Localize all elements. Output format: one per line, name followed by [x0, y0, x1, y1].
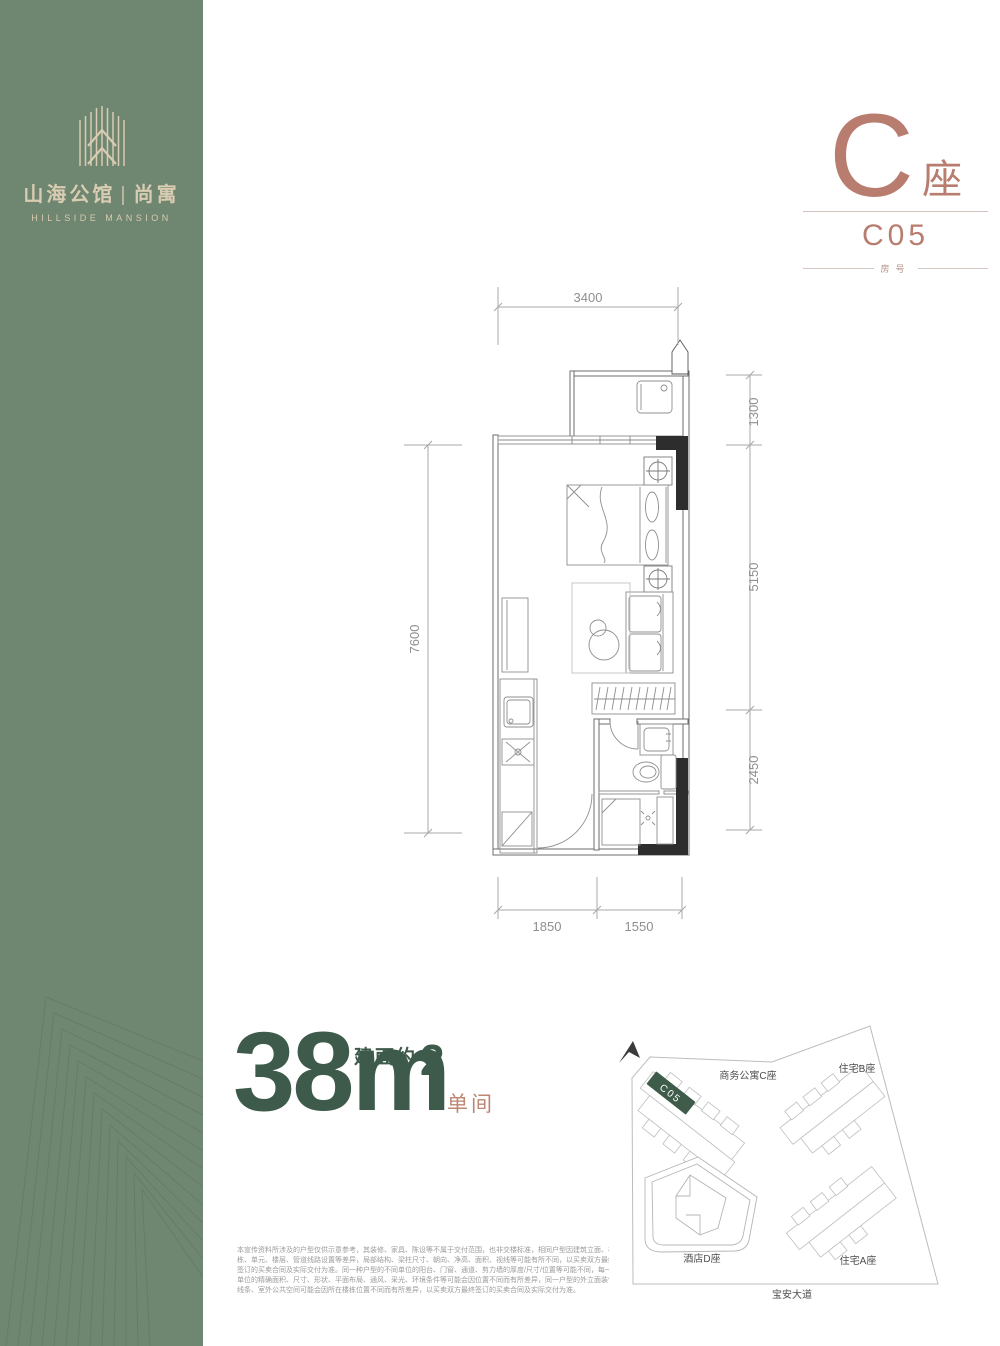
bed [567, 485, 668, 565]
brand-name-separator: | [115, 184, 133, 206]
area-block: 38m 建面约 2 单间 [233, 1026, 513, 1138]
dim-bottom-2-label: 1550 [625, 919, 654, 934]
unit-number-caption: 房号 [881, 262, 911, 275]
brand-monogram-icon [78, 104, 126, 168]
building-b-label: 住宅B座 [839, 1062, 876, 1075]
floor-plan-drawing: 3400 1300 5150 2450 7600 1850 1550 [400, 280, 780, 940]
site-plan-map: C05 商务公寓C座 住宅B座 酒店D座 住宅A座 宝安大道 [608, 1015, 978, 1315]
brand-sidebar: 山海公馆|尚寓 HILLSIDE MANSION [0, 0, 203, 1346]
caption-line-right [918, 268, 989, 269]
brand-name-cn: 山海公馆|尚寓 [0, 178, 203, 207]
brochure-page: 山海公馆|尚寓 HILLSIDE MANSION C [0, 0, 1000, 1346]
dim-top-label: 3400 [574, 290, 603, 305]
entrance-arrow-marker [672, 340, 688, 374]
coffee-table [589, 620, 619, 660]
bathroom-fixtures [602, 724, 676, 845]
road-label: 宝安大道 [772, 1288, 812, 1301]
dimension-labels: 3400 1300 5150 2450 7600 1850 1550 [407, 290, 761, 934]
area-prefix-label: 建面约 [354, 1042, 417, 1069]
toilet [661, 755, 676, 789]
building-letter: C [829, 106, 914, 206]
kitchen-sink [504, 697, 533, 727]
building-d-label: 酒店D座 [683, 1252, 720, 1265]
unit-header: C 座 C05 房号 [803, 102, 988, 275]
brand-block: 山海公馆|尚寓 HILLSIDE MANSION [0, 0, 203, 223]
building-c-label: 商务公寓C座 [719, 1069, 776, 1082]
layout-type-label: 单间 [447, 1088, 495, 1118]
north-arrow-icon [619, 1041, 640, 1063]
tv-cabinet [502, 598, 528, 672]
area-value: 38m [233, 1026, 448, 1118]
area-exponent: 2 [420, 1036, 444, 1086]
dim-right-1-label: 1300 [746, 398, 761, 427]
floor-plan-windows [498, 436, 688, 794]
disclaimer-line: 本宣传资料所涉及的户型仅供示意参考，其装修、家具、陈设等不属于交付范围，也非交楼… [237, 1246, 609, 1256]
brand-name-en: HILLSIDE MANSION [0, 213, 203, 223]
entry-door-swing [538, 794, 592, 848]
dim-right-3-label: 2450 [746, 756, 761, 785]
unit-number-caption-row: 房号 [803, 262, 988, 275]
bathroom-door-swing [610, 721, 638, 749]
building-a-label: 住宅A座 [840, 1254, 877, 1267]
disclaimer-line: 线条、室外公共空间可能会因所在楼栋位置不同而有所差异，以买卖双方最终签订的买卖合… [237, 1286, 609, 1296]
disclaimer-text: 本宣传资料所涉及的户型仅供示意参考，其装修、家具、陈设等不属于交付范围，也非交楼… [237, 1246, 609, 1296]
building-title: C 座 [803, 102, 988, 206]
sofa [626, 592, 673, 673]
washing-machine [637, 381, 672, 413]
dim-right-2-label: 5150 [746, 563, 761, 592]
brand-name-sub: 尚寓 [134, 184, 180, 206]
disclaimer-line: 签订的买卖合同及实际交付为准。同一种户型的不同单位的阳台、门窗、通道、剪力墙的厚… [237, 1266, 609, 1276]
dim-bottom-1-label: 1850 [533, 919, 562, 934]
dim-left-label: 7600 [407, 625, 422, 654]
kitchen-counter [500, 679, 537, 853]
building-suffix: 座 [922, 160, 962, 200]
bathroom-sink [640, 724, 673, 755]
building-d-footprint [645, 1157, 757, 1252]
disclaimer-line: 单位的精确面积、尺寸、形状、平面布局、通风、采光、环境条件等可能会因位置不同而有… [237, 1276, 609, 1286]
caption-line-left [803, 268, 874, 269]
brand-name-main: 山海公馆 [23, 184, 115, 206]
unit-number: C05 [803, 219, 988, 253]
wardrobe [592, 683, 675, 714]
disclaimer-line: 栋、单元、楼层、管道线路设置等差异，局部结构、梁柱尺寸、朝向、净高、面积、视线等… [237, 1256, 609, 1266]
shower [602, 799, 640, 845]
sidebar-geometric-pattern [0, 985, 203, 1346]
